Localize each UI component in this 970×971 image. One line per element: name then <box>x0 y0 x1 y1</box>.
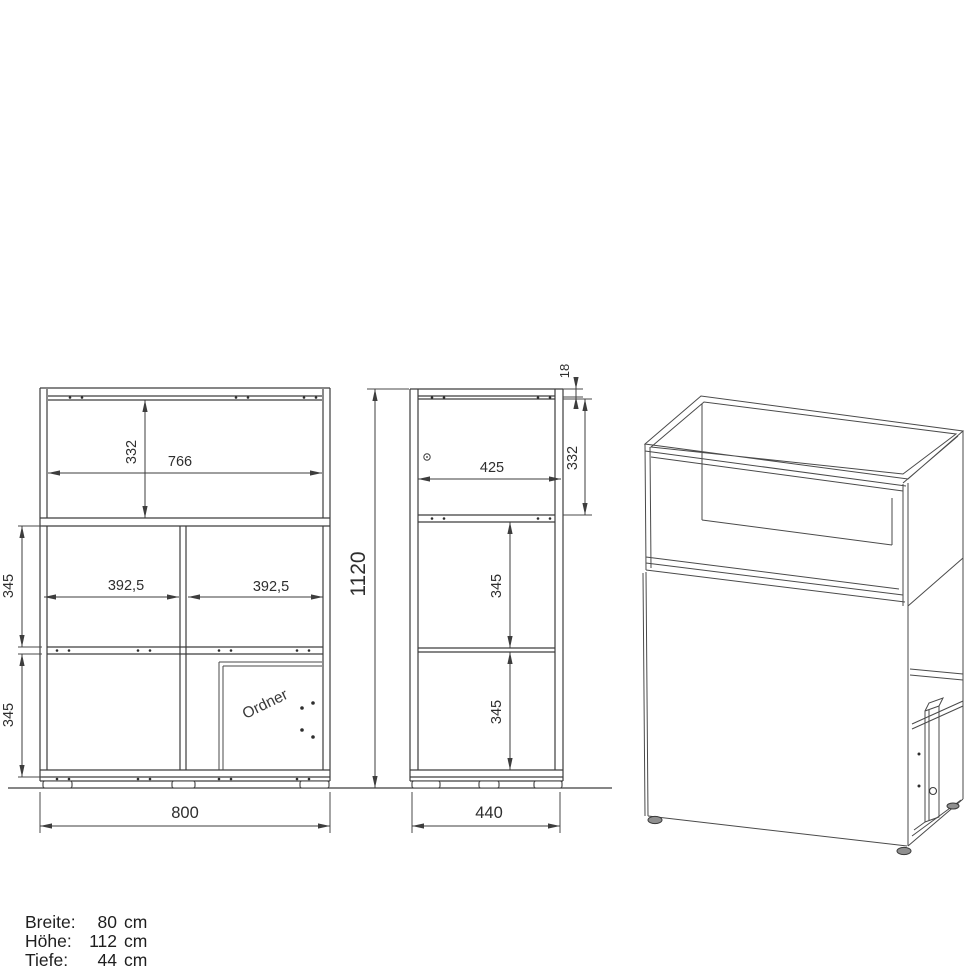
side-carcass-lines <box>410 389 563 781</box>
spec-label-hoehe: Höhe: <box>25 931 72 951</box>
perspective-hutch-lines <box>645 396 963 606</box>
technical-drawing: Ordner <box>0 0 970 971</box>
cam-lock-icon <box>424 454 430 460</box>
side-fitting-dots <box>431 396 552 520</box>
dim-front-shelf-height: 332 <box>124 440 140 464</box>
dim-side-row1-height: 345 <box>489 574 505 598</box>
binder-holes <box>300 701 315 739</box>
dim-side-depth-inner: 425 <box>480 460 504 476</box>
side-view: 1120 18 332 425 345 345 440 <box>347 364 592 833</box>
spec-value-hoehe: 112 <box>89 931 117 951</box>
dim-side-row2-height: 345 <box>489 700 505 724</box>
dim-front-shelf-width: 766 <box>168 454 192 470</box>
dim-front-total-width: 800 <box>171 804 199 822</box>
specs-block: Breite: 80 cm Höhe: 112 cm Tiefe: 44 cm <box>25 912 147 970</box>
perspective-feet <box>648 803 959 855</box>
spec-value-tiefe: 44 <box>98 950 118 970</box>
dim-side-panel-thickness: 18 <box>557 364 572 378</box>
dim-side-total-height: 1120 <box>347 551 370 596</box>
front-dimensions: 332 766 345 345 392,5 392,5 800 <box>1 400 330 833</box>
spec-label-tiefe: Tiefe: <box>25 950 68 970</box>
front-feet <box>43 781 329 788</box>
dim-front-bay-right: 392,5 <box>253 579 289 595</box>
spec-value-breite: 80 <box>98 912 118 932</box>
spec-label-breite: Breite: <box>25 912 76 932</box>
spec-unit-tiefe: cm <box>124 950 147 970</box>
binder-outline <box>219 662 322 770</box>
dim-front-row1-height: 345 <box>1 574 17 598</box>
dim-front-row2-height: 345 <box>1 703 17 727</box>
perspective-view <box>643 396 963 855</box>
dim-side-top-height: 332 <box>565 446 581 470</box>
binder-3d <box>914 698 943 830</box>
dim-front-bay-left: 392,5 <box>108 578 144 594</box>
binder-label: Ordner <box>240 686 291 722</box>
side-feet <box>412 781 562 788</box>
front-view: Ordner <box>1 388 330 833</box>
dim-side-total-depth: 440 <box>475 804 503 822</box>
spec-unit-breite: cm <box>124 912 147 932</box>
spec-unit-hoehe: cm <box>124 931 147 951</box>
perspective-base-lines <box>643 558 963 846</box>
